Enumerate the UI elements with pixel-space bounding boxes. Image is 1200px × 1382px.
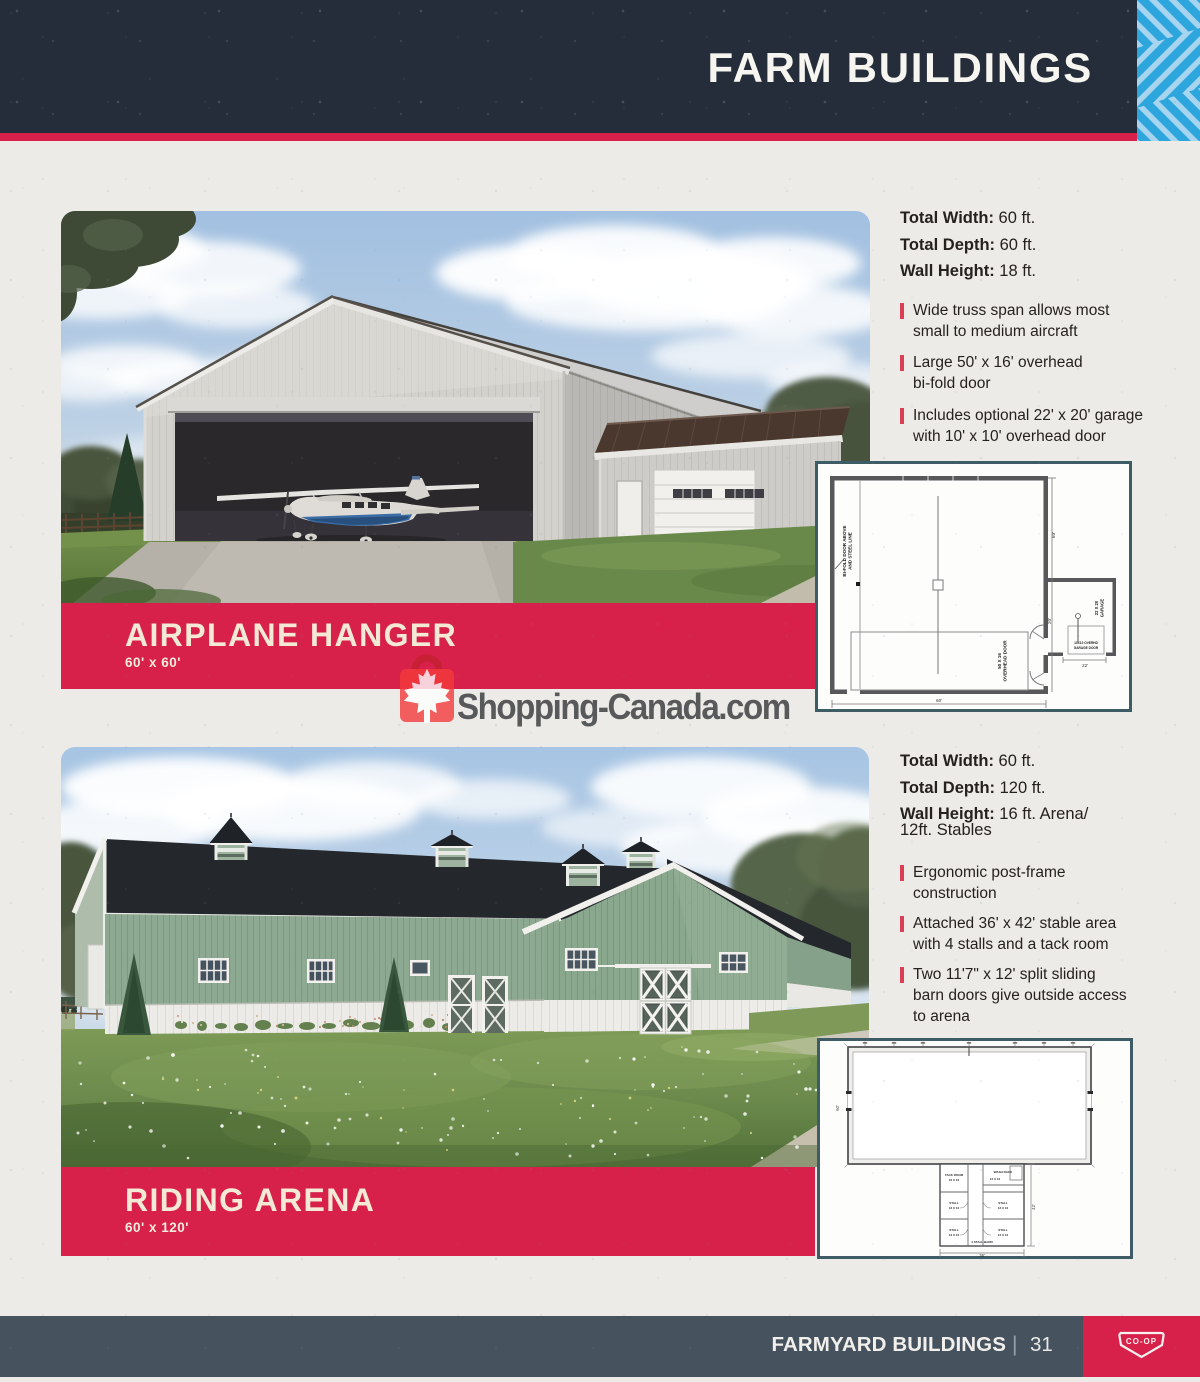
svg-text:STALL: STALL: [949, 1201, 959, 1205]
svg-text:4 STALL BARN: 4 STALL BARN: [971, 1240, 992, 1244]
svg-text:12 X 12: 12 X 12: [990, 1177, 1001, 1181]
svg-text:WASH RACK: WASH RACK: [994, 1170, 1013, 1174]
svg-text:36': 36': [979, 1253, 985, 1258]
svg-text:STALL: STALL: [998, 1228, 1008, 1232]
svg-text:20': 20': [1047, 618, 1052, 624]
svg-text:OVERHEAD DOOR: OVERHEAD DOOR: [1003, 640, 1008, 682]
svg-text:CO-OP: CO-OP: [1126, 1337, 1157, 1346]
svg-text:22': 22': [1082, 663, 1088, 668]
svg-text:22 X 20: 22 X 20: [1094, 600, 1099, 615]
svg-text:10X10 OVERHD: 10X10 OVERHD: [1074, 641, 1098, 645]
svg-text:AND STEEL LINE: AND STEEL LINE: [848, 532, 853, 570]
svg-text:12 X 12: 12 X 12: [949, 1233, 960, 1237]
svg-text:GARAGE DOOR: GARAGE DOOR: [1074, 646, 1099, 650]
svg-text:STALL: STALL: [949, 1228, 959, 1232]
svg-text:60': 60': [835, 1105, 840, 1111]
svg-text:GARAGE: GARAGE: [1100, 599, 1105, 618]
svg-text:50 X 16: 50 X 16: [997, 653, 1002, 669]
svg-text:42': 42': [1031, 1204, 1036, 1210]
svg-text:60': 60': [1051, 532, 1056, 538]
svg-text:10 X 12: 10 X 12: [949, 1178, 960, 1182]
svg-text:BI-FOLD DOOR ABOVE: BI-FOLD DOOR ABOVE: [842, 525, 847, 576]
svg-text:60': 60': [936, 698, 942, 703]
svg-text:12 X 12: 12 X 12: [998, 1206, 1009, 1210]
svg-text:12 X 12: 12 X 12: [949, 1206, 960, 1210]
svg-text:STALL: STALL: [998, 1201, 1008, 1205]
svg-text:TACK ROOM: TACK ROOM: [945, 1173, 964, 1177]
svg-text:12 X 12: 12 X 12: [998, 1233, 1009, 1237]
